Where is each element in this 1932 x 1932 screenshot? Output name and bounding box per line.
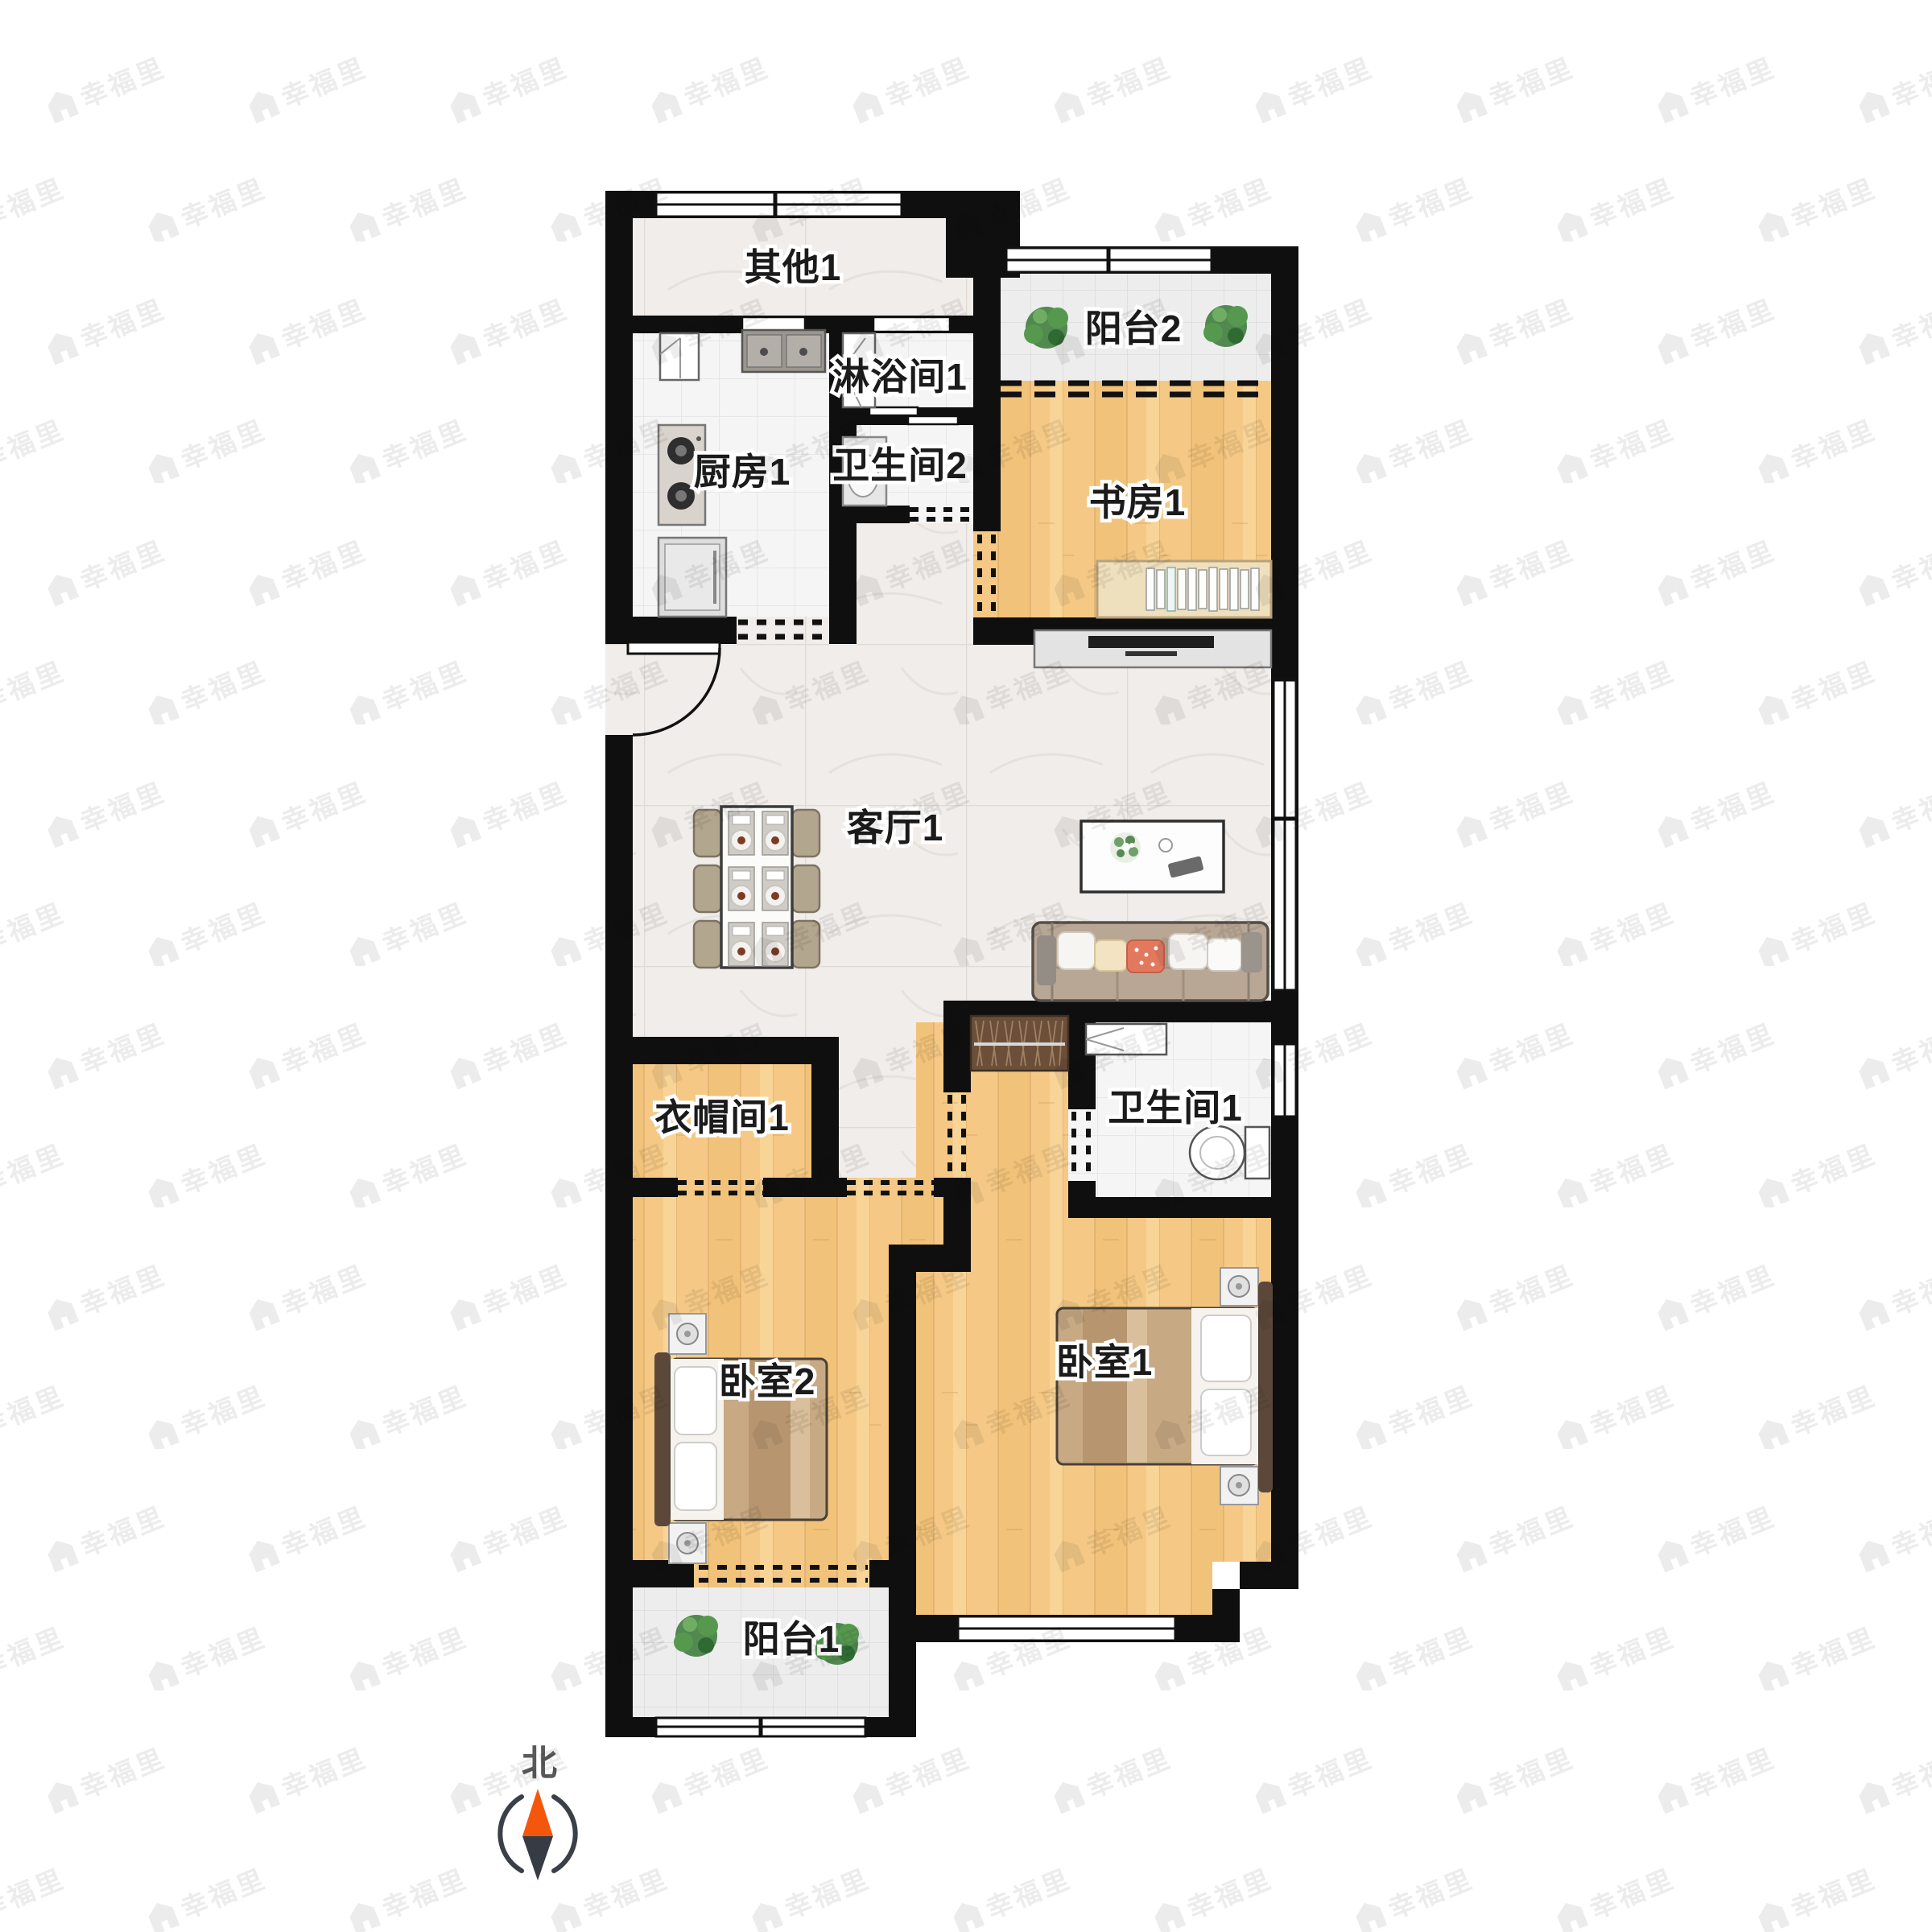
- floorplan-svg: 幸福里 幸福里 幸福里: [0, 0, 1932, 1932]
- floorplan-canvas: 幸福里 幸福里 幸福里: [0, 0, 1932, 1932]
- watermark-layer: [0, 0, 1932, 1932]
